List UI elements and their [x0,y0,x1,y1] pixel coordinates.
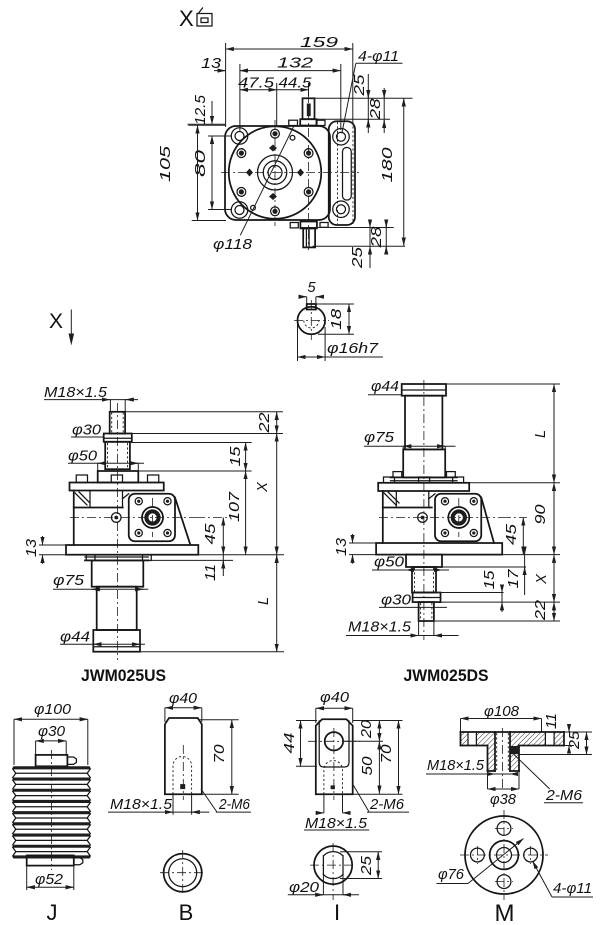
svg-text:J: J [47,900,58,925]
svg-text:X: X [179,6,194,31]
svg-text:15: 15 [482,569,498,589]
svg-text:90: 90 [533,505,549,525]
svg-text:25: 25 [350,246,366,270]
svg-text:φ16h7: φ16h7 [327,341,379,357]
svg-text:M18×1.5: M18×1.5 [110,797,173,813]
svg-text:I: I [334,900,340,925]
svg-text:JWM025DS: JWM025DS [404,666,489,685]
svg-text:44: 44 [282,733,298,754]
svg-text:φ118: φ118 [213,237,252,253]
svg-text:45: 45 [504,523,520,545]
svg-text:X: X [534,573,550,585]
svg-text:70: 70 [379,745,395,764]
svg-text:44.5: 44.5 [279,76,313,92]
svg-text:φ30: φ30 [381,593,411,609]
svg-text:φ52: φ52 [35,872,63,888]
svg-text:13: 13 [334,538,350,556]
svg-text:180: 180 [380,148,396,183]
svg-text:φ38: φ38 [490,792,516,808]
svg-text:L: L [256,597,272,605]
svg-text:11: 11 [544,713,560,729]
svg-text:φ30: φ30 [72,423,101,439]
svg-text:25: 25 [352,73,368,97]
svg-text:2-M6: 2-M6 [545,788,583,804]
svg-text:4-φ11: 4-φ11 [358,49,399,65]
svg-text:12.5: 12.5 [193,94,209,125]
svg-text:φ76: φ76 [438,867,465,883]
svg-text:25: 25 [567,730,583,750]
svg-text:47.5: 47.5 [238,76,275,92]
svg-text:28: 28 [369,227,385,249]
svg-text:13: 13 [201,56,221,72]
svg-text:M: M [495,900,515,925]
svg-text:φ75: φ75 [364,430,395,446]
svg-text:18: 18 [329,309,345,330]
svg-text:5: 5 [307,280,316,296]
svg-text:17: 17 [506,568,522,588]
svg-text:45: 45 [203,522,219,544]
svg-text:159: 159 [300,35,338,51]
svg-text:25: 25 [359,855,375,876]
svg-text:28: 28 [368,99,384,121]
svg-text:φ30: φ30 [38,724,65,740]
svg-text:M18×1.5: M18×1.5 [348,620,412,636]
svg-text:φ40: φ40 [169,691,197,707]
svg-text:105: 105 [158,145,174,182]
svg-text:φ50: φ50 [374,555,404,571]
svg-text:φ40: φ40 [320,690,349,706]
svg-text:JWM025US: JWM025US [81,666,166,685]
svg-text:4-φ11: 4-φ11 [553,881,592,897]
svg-text:φ20: φ20 [289,880,319,896]
svg-text:φ108: φ108 [484,704,519,720]
svg-text:132: 132 [277,56,313,72]
svg-text:M18×1.5: M18×1.5 [44,385,108,401]
svg-text:11: 11 [203,564,219,581]
svg-text:φ44: φ44 [371,379,399,395]
svg-text:X: X [255,481,271,493]
svg-text:70: 70 [212,745,228,764]
svg-text:15: 15 [228,445,244,466]
svg-text:2-M6: 2-M6 [369,797,405,813]
svg-text:107: 107 [227,491,243,522]
svg-text:φ44: φ44 [60,630,90,646]
svg-text:φ75: φ75 [53,573,85,589]
svg-text:X: X [49,310,63,333]
svg-text:22: 22 [257,413,273,434]
svg-text:2-M6: 2-M6 [218,797,251,813]
svg-text:M18×1.5: M18×1.5 [427,758,485,774]
svg-text:80: 80 [193,150,209,177]
svg-text:22: 22 [533,600,549,621]
svg-text:13: 13 [24,539,40,557]
svg-text:φ100: φ100 [34,702,71,718]
svg-text:B: B [179,900,194,925]
svg-text:20: 20 [359,720,375,739]
svg-text:φ50: φ50 [68,449,97,465]
svg-text:50: 50 [360,757,376,776]
svg-text:L: L [533,430,549,438]
